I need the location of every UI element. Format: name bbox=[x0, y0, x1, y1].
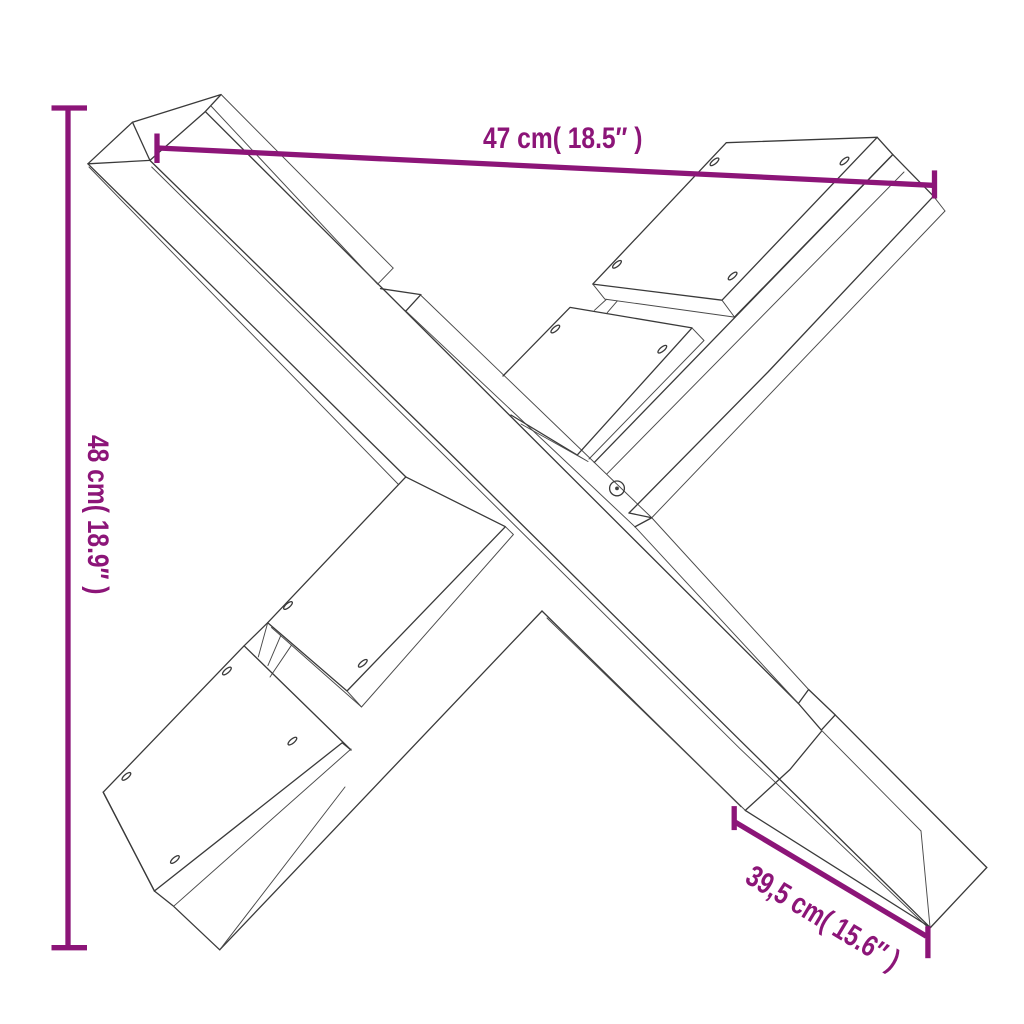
svg-text:47 cm( 18.5″ ): 47 cm( 18.5″ ) bbox=[483, 121, 642, 155]
svg-text:48 cm( 18.9″ ): 48 cm( 18.9″ ) bbox=[81, 435, 115, 594]
